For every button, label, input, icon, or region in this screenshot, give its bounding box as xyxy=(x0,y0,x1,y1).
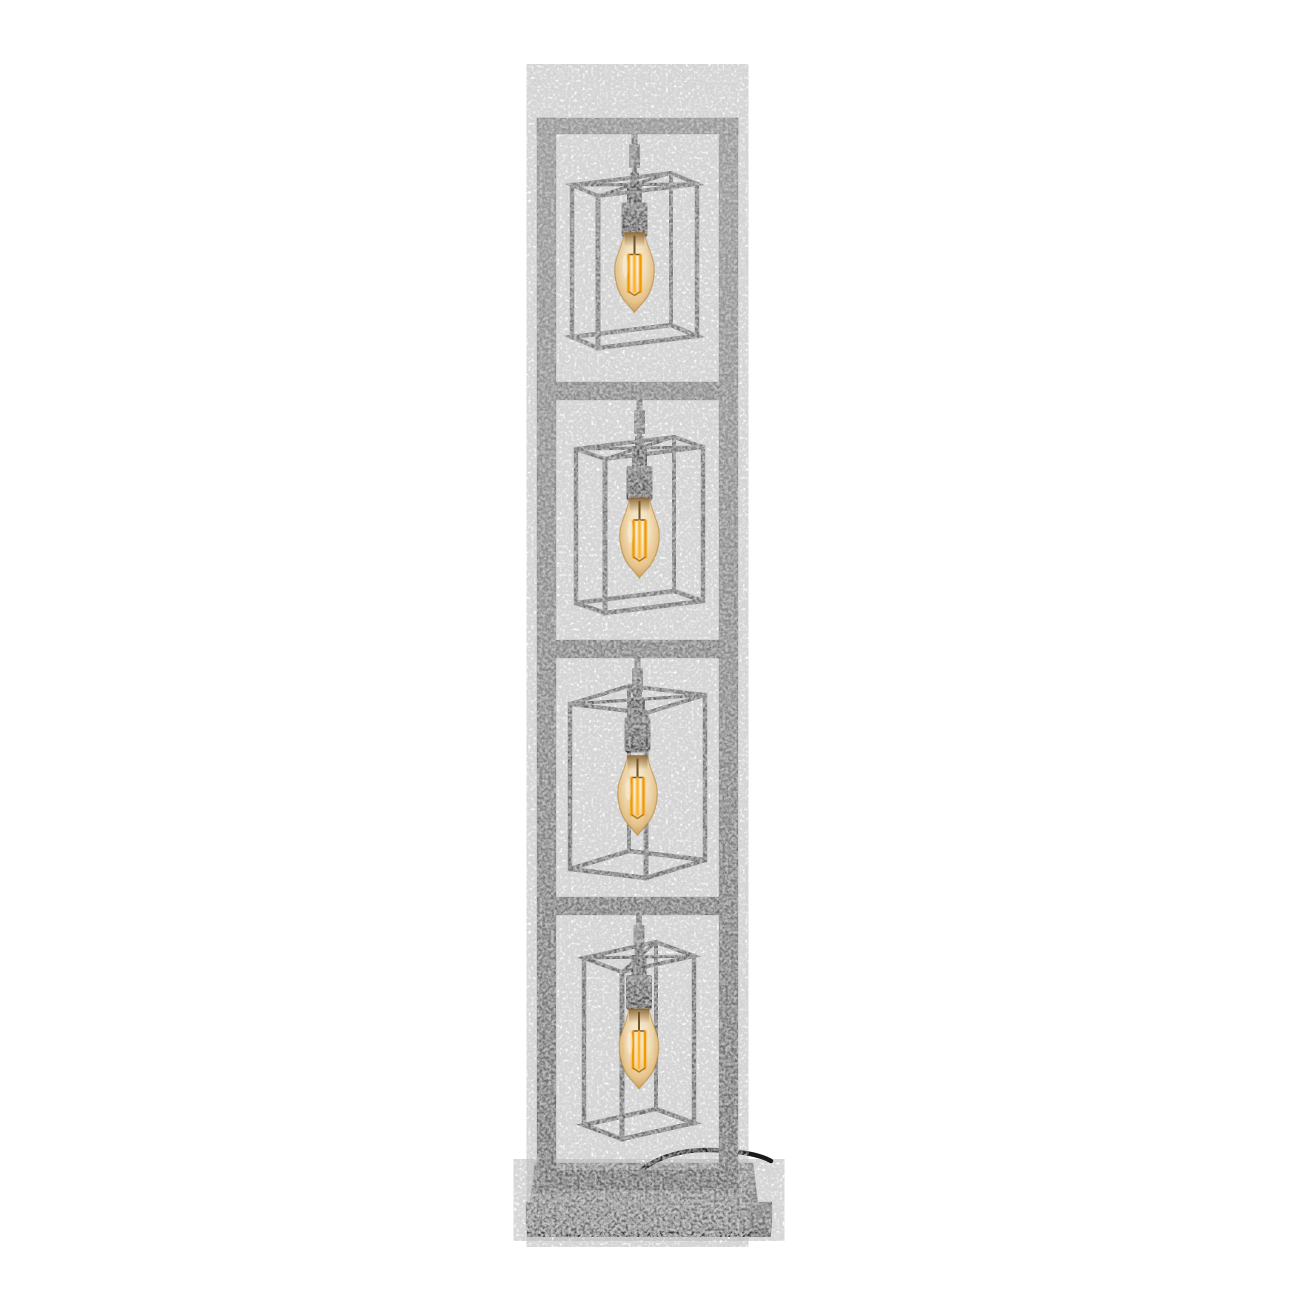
frame-bottom-rail xyxy=(548,1170,738,1190)
frame-left-post xyxy=(537,118,556,1193)
socket-collar-2 xyxy=(627,466,653,471)
frame-crossbar-1 xyxy=(556,382,719,400)
bulb-socket-3 xyxy=(625,718,651,752)
frame-crossbar-3 xyxy=(556,897,719,915)
frame-right-post xyxy=(719,118,738,1193)
frame-crossbar-2 xyxy=(556,640,719,658)
base-upper-slab-front xyxy=(530,1204,758,1222)
rod-shaft-2 xyxy=(637,432,642,436)
floor-lamp-illustration xyxy=(0,0,1300,1300)
bulb-socket-1 xyxy=(622,203,648,237)
bulb-socket-4 xyxy=(626,975,652,1009)
socket-collar-4 xyxy=(626,975,652,980)
socket-collar-1 xyxy=(622,203,648,208)
glass-highlight-4 xyxy=(627,1032,633,1054)
bulb-socket-2 xyxy=(627,466,653,500)
glass-highlight-1 xyxy=(623,256,629,278)
glass-highlight-3 xyxy=(626,779,632,801)
product-photo xyxy=(0,0,1300,1300)
base-bottom-edge xyxy=(527,1232,771,1237)
frame-top-bar xyxy=(537,118,738,134)
rod-shaft-1 xyxy=(632,166,637,173)
socket-rim-3 xyxy=(626,749,650,753)
glass-highlight-2 xyxy=(628,521,634,543)
socket-collar-3 xyxy=(625,718,651,723)
